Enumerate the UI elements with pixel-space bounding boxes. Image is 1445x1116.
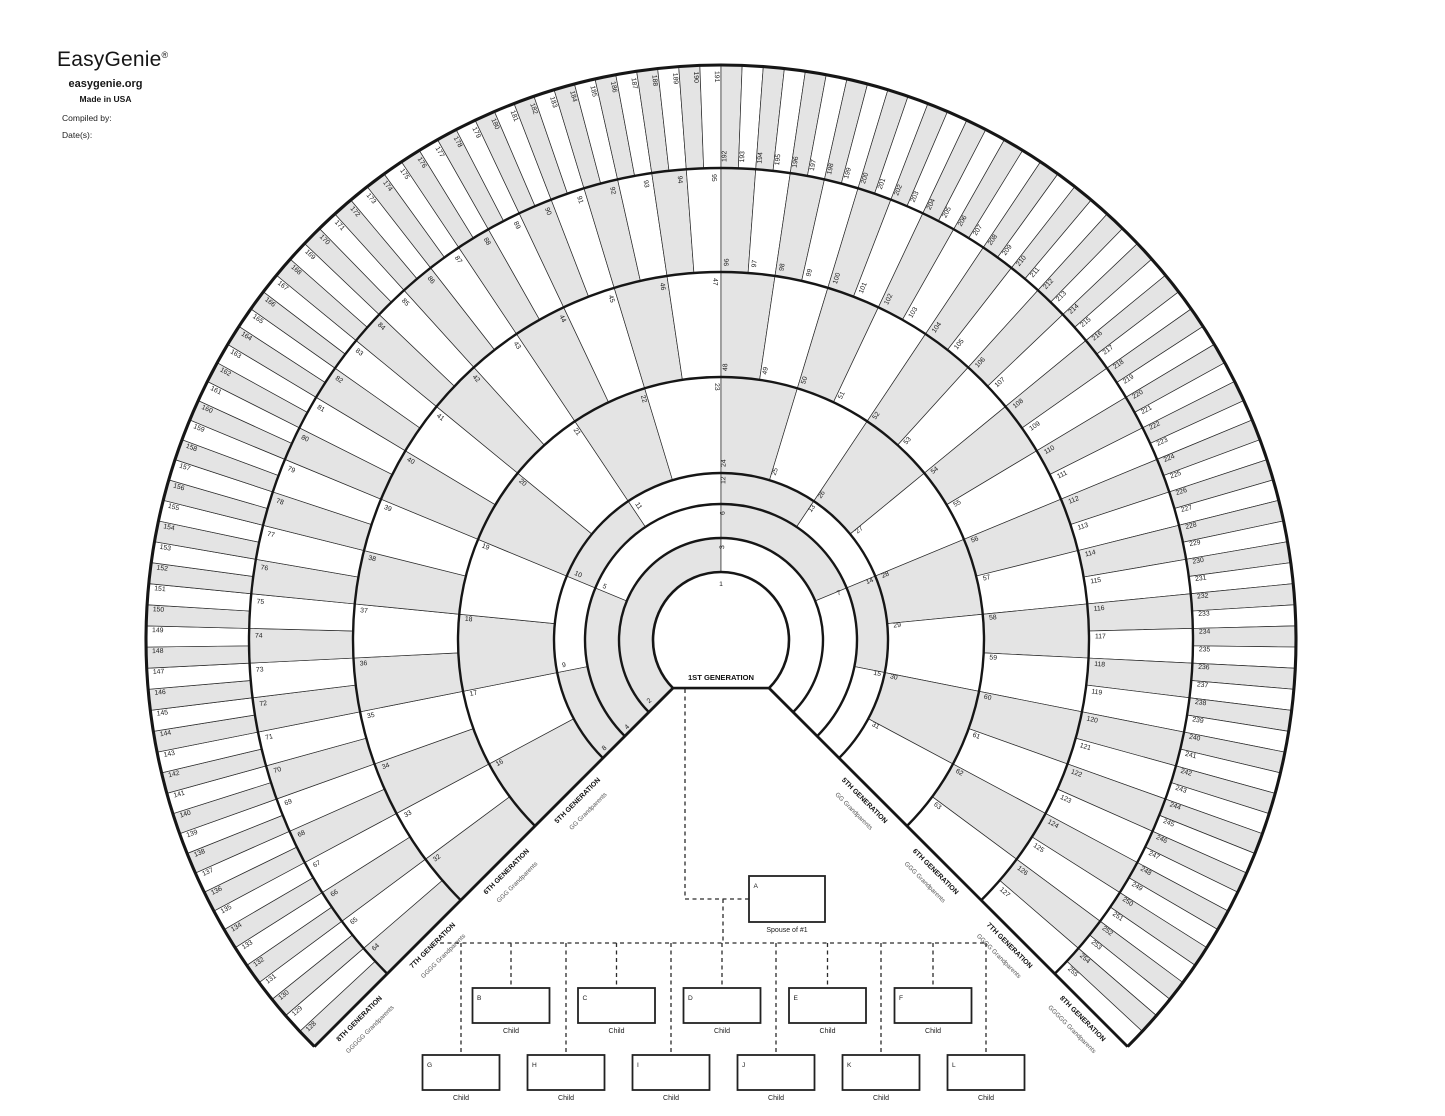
child-c-caption: Child (609, 1028, 625, 1035)
segment-number-192: 192 (721, 150, 728, 162)
segment-number-18: 18 (465, 616, 473, 624)
fan-chart-sheet: EasyGenie® easygenie.org Made in USA Com… (0, 0, 1445, 1116)
child-d-caption: Child (714, 1028, 730, 1035)
child-b-caption: Child (503, 1028, 519, 1035)
segment-number-150: 150 (153, 606, 165, 614)
segment-number-191: 191 (713, 71, 720, 83)
child-l-box (948, 1055, 1025, 1090)
segment-number-232: 232 (1197, 592, 1209, 600)
edge-sublabel-right-gen5: GG Grandparents (833, 791, 873, 831)
segment-number-47: 47 (711, 278, 718, 286)
segment-number-49: 49 (762, 366, 770, 375)
child-f-box (895, 988, 972, 1023)
segment-number-97: 97 (751, 259, 759, 267)
fan-segment-74 (249, 628, 353, 663)
segment-number-234: 234 (1199, 628, 1211, 635)
segment-number-59: 59 (989, 654, 997, 662)
segment-number-95: 95 (710, 174, 717, 182)
child-h-caption: Child (558, 1095, 574, 1102)
segment-number-3: 3 (719, 545, 726, 549)
segment-number-237: 237 (1197, 681, 1209, 689)
segment-number-233: 233 (1198, 610, 1210, 618)
segment-number-189: 189 (671, 73, 679, 85)
edge-sublabel-left-gen6: GGG Grandparents (495, 861, 539, 905)
child-f-caption: Child (925, 1028, 941, 1035)
child-i-caption: Child (663, 1095, 679, 1102)
segment-number-188: 188 (650, 75, 658, 87)
segment-number-145: 145 (156, 709, 168, 717)
segment-number-194: 194 (757, 152, 765, 164)
segment-number-1: 1 (719, 581, 723, 588)
child-j-box (738, 1055, 815, 1090)
segment-number-72: 72 (259, 700, 268, 708)
child-h-letter: H (532, 1062, 537, 1069)
child-c-box (578, 988, 655, 1023)
child-g-letter: G (427, 1062, 432, 1069)
segment-number-238: 238 (1194, 699, 1206, 707)
child-h-box (528, 1055, 605, 1090)
child-d-letter: D (688, 995, 693, 1002)
center-generation-label: 1ST GENERATION (688, 673, 754, 682)
segment-number-37: 37 (360, 607, 368, 615)
child-i-letter: I (637, 1062, 639, 1069)
brand-site: easygenie.org (57, 78, 154, 90)
segment-number-149: 149 (152, 627, 164, 634)
spouse-letter: A (754, 883, 759, 890)
child-l-letter: L (952, 1062, 956, 1069)
brand-name: EasyGenie (57, 48, 162, 71)
segment-number-151: 151 (154, 585, 166, 593)
child-e-caption: Child (820, 1028, 836, 1035)
edge-sublabel-right-gen6: GGG Grandparents (903, 861, 947, 905)
child-l-caption: Child (978, 1095, 994, 1102)
segment-number-94: 94 (676, 176, 684, 184)
child-f-letter: F (899, 995, 903, 1002)
child-j-letter: J (742, 1062, 745, 1069)
segment-number-29: 29 (893, 622, 901, 630)
child-g-caption: Child (453, 1095, 469, 1102)
sheet-header: EasyGenie® easygenie.org Made in USA Com… (0, 0, 300, 200)
child-k-letter: K (847, 1062, 852, 1069)
segment-number-193: 193 (739, 151, 747, 163)
segment-number-146: 146 (154, 689, 166, 697)
segment-number-76: 76 (260, 564, 269, 572)
segment-number-190: 190 (692, 71, 700, 83)
child-j-caption: Child (768, 1095, 784, 1102)
child-d-box (684, 988, 761, 1023)
child-b-box (473, 988, 550, 1023)
segment-number-236: 236 (1198, 664, 1210, 672)
child-k-caption: Child (873, 1095, 889, 1102)
edge-sublabel-left-gen5: GG Grandparents (568, 791, 608, 831)
segment-number-12: 12 (720, 476, 727, 484)
made-in-usa-label: Made in USA (57, 94, 154, 104)
child-i-box (633, 1055, 710, 1090)
compiled-by-field-label: Compiled by: (62, 113, 112, 123)
spouse-caption: Spouse of #1 (766, 927, 807, 934)
brand-logo: EasyGenie® (57, 48, 168, 72)
segment-number-93: 93 (642, 180, 650, 189)
segment-number-98: 98 (778, 263, 786, 272)
segment-number-75: 75 (256, 598, 264, 606)
dates-field-label: Date(s): (62, 130, 92, 140)
registered-mark: ® (162, 50, 169, 60)
segment-number-48: 48 (722, 363, 729, 371)
segment-number-147: 147 (153, 668, 165, 676)
segment-number-116: 116 (1093, 605, 1105, 613)
segment-number-73: 73 (256, 666, 264, 673)
segment-number-58: 58 (989, 614, 997, 622)
segment-number-231: 231 (1195, 575, 1207, 583)
child-b-letter: B (477, 995, 482, 1002)
segment-number-148: 148 (152, 648, 164, 655)
segment-number-118: 118 (1094, 661, 1105, 669)
child-g-box (423, 1055, 500, 1090)
segment-number-46: 46 (658, 282, 666, 291)
segment-number-6: 6 (720, 511, 727, 515)
segment-number-36: 36 (360, 660, 368, 668)
segment-number-117: 117 (1095, 633, 1106, 640)
child-e-box (789, 988, 866, 1023)
segment-number-195: 195 (774, 153, 782, 165)
child-e-letter: E (794, 995, 799, 1002)
segment-number-23: 23 (713, 383, 720, 391)
child-c-letter: C (583, 995, 588, 1002)
spouse-box (749, 876, 825, 922)
segment-number-74: 74 (255, 633, 263, 640)
segment-number-152: 152 (156, 565, 168, 573)
segment-number-96: 96 (724, 258, 731, 266)
segment-number-24: 24 (721, 459, 728, 467)
child-k-box (843, 1055, 920, 1090)
segment-number-235: 235 (1199, 646, 1211, 653)
